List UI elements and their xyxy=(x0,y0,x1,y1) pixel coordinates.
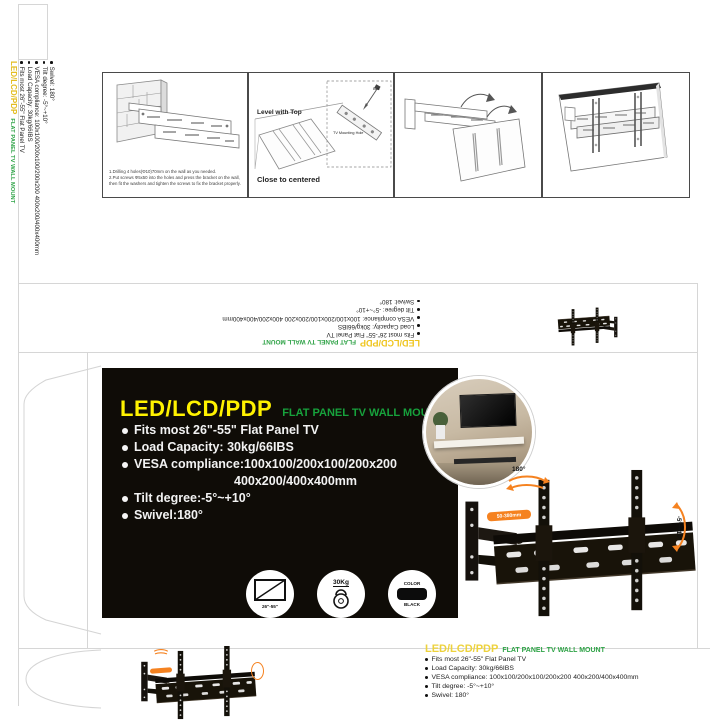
spec-text: Tilt degree: -5°~+10° xyxy=(432,682,495,691)
step2-label-level: Level with Top xyxy=(257,109,302,116)
instruction-step2: Level with Top Close to centered TV Moun… xyxy=(248,72,394,198)
spec-text: VESA compliance: 100x100/200x100/200x200… xyxy=(33,67,40,256)
front-spec-vesa: VESA compliance:100x100/200x100/200x200 xyxy=(122,456,397,473)
inverted-brand: LED/LCD/PDPFLAT PANEL TV WALL MOUNT xyxy=(130,338,420,348)
step2-label-bolt: Bolt xyxy=(373,87,380,91)
bottom-spec-vesa: VESA compliance: 100x100/200x100/200x200… xyxy=(425,673,639,682)
spec-text: Fits most 26"-55" Flat Panel TV xyxy=(134,422,319,439)
bullet-dot xyxy=(122,428,128,434)
step1-caption-2: 2.Put screws Φ5x50 into the holes and pr… xyxy=(109,175,240,181)
brand-name: LED/LCD/PDP xyxy=(360,338,420,348)
spec-text: Fits most 26"-55" Flat Panel TV xyxy=(432,655,527,664)
spec-text: Fits most 26"-55" Flat Panel TV xyxy=(327,330,415,338)
side-spec-fits: Fits most 26"-55" Flat Panel TV xyxy=(18,61,25,285)
bullet-dot xyxy=(417,333,420,336)
bottom-spec-swivel: Swivel: 180° xyxy=(425,691,639,700)
brand-name: LED/LCD/PDP xyxy=(120,396,272,422)
inverted-spec-vesa: VESA compliance: 100x100/200x100/200x200… xyxy=(130,313,420,321)
side-brand: LED/LCD/PDPFLAT PANEL TV WALL MOUNT xyxy=(9,61,18,285)
screen-range-label: 26"-55" xyxy=(262,604,278,610)
front-spec-tilt: Tilt degree:-5°~+10° xyxy=(122,490,397,507)
bottom-tilt-mark xyxy=(251,662,264,680)
bullet-dot xyxy=(122,445,128,451)
spec-text: Load Capacity: 30kg/66IBS xyxy=(432,664,514,673)
spec-text: Fits most 26"-55" Flat Panel TV xyxy=(18,67,25,153)
front-spec-swivel: Swivel:180° xyxy=(122,507,397,524)
weight-label: 30Kg xyxy=(333,579,349,587)
bullet-dot xyxy=(425,685,428,688)
brand-tagline: FLAT PANEL TV WALL MOUNT xyxy=(262,338,356,345)
instruction-step4 xyxy=(542,72,690,198)
bullet-dot xyxy=(417,324,420,327)
spec-text: VESA compliance: 100x100/200x100/200x200… xyxy=(432,673,639,682)
inverted-spec-load: Load Capacity: 30kg/66IBS xyxy=(130,322,420,330)
badge-screen-size: 26"-55" xyxy=(246,570,294,618)
photo-tv xyxy=(459,393,516,428)
bullet-dot xyxy=(425,667,428,670)
brand-tagline: FLAT PANEL TV WALL MOUNT xyxy=(502,647,605,654)
step4-diagram xyxy=(543,73,689,197)
mount-artwork-large xyxy=(455,468,703,626)
spec-text: Swivel: 180° xyxy=(48,67,55,101)
bottom-swivel-arrow-icon xyxy=(152,648,170,656)
bullet-dot xyxy=(417,300,420,303)
bullet-dot xyxy=(50,61,53,64)
spec-text: Tilt degree: -5°~+10° xyxy=(40,67,47,124)
front-spec-load: Load Capacity: 30kg/66IBS xyxy=(122,439,397,456)
color-swatch-black xyxy=(397,588,427,600)
inverted-mount-image xyxy=(556,294,620,346)
bottom-panel-text: LED/LCD/PDP FLAT PANEL TV WALL MOUNT Fit… xyxy=(425,643,639,700)
package-artwork: { "side_strip": { "brand": "LED/LCD/PDP"… xyxy=(0,0,710,710)
spec-text: VESA compliance:100x100/200x100/200x200 xyxy=(134,456,397,473)
inverted-spec-swivel: Swivel: 180° xyxy=(130,297,420,305)
mount-artwork-small-inverted xyxy=(556,305,620,346)
bullet-dot xyxy=(425,694,428,697)
color-value-label: BLACK xyxy=(404,602,420,608)
bullet-dot xyxy=(417,308,420,311)
bullet-dot xyxy=(425,658,428,661)
step1-caption-3: then fit the washers and tighten the scr… xyxy=(109,181,241,187)
badge-color: COLOR BLACK xyxy=(388,570,436,618)
bullet-dot xyxy=(417,316,420,319)
step1-caption-1: 1.Drilling 4 holes(Φ10)70mm on the wall … xyxy=(109,169,216,175)
front-spec-fits: Fits most 26"-55" Flat Panel TV xyxy=(122,422,397,439)
inverted-spec-fits: Fits most 26"-55" Flat Panel TV xyxy=(130,330,420,338)
bottom-spec-fits: Fits most 26"-55" Flat Panel TV xyxy=(425,655,639,664)
swivel-annotation: 180° xyxy=(512,466,525,473)
tilt-arrow-icon xyxy=(668,500,694,554)
spec-text: VESA compliance: 100x100/200x100/200x200… xyxy=(222,313,414,321)
bullet-dot xyxy=(425,676,428,679)
bullet-dot xyxy=(28,61,31,64)
side-spec-vesa: VESA compliance: 100x100/200x100/200x200… xyxy=(33,61,40,285)
swivel-arrow-icon xyxy=(503,474,551,492)
front-panel: LED/LCD/PDP FLAT PANEL TV WALL MOUNT Fit… xyxy=(102,368,458,618)
bullet-dot xyxy=(122,513,128,519)
color-label: COLOR xyxy=(404,581,421,587)
instruction-step3 xyxy=(394,72,542,198)
spec-text: Swivel: 180° xyxy=(379,297,414,305)
side-spec-swivel: Swivel: 180° xyxy=(48,61,55,285)
extension-label: 50-380mm xyxy=(497,512,522,520)
instruction-step1: 1.Drilling 4 holes(Φ10)70mm on the wall … xyxy=(102,72,248,198)
tv-screen-icon xyxy=(252,578,288,604)
badge-weight: 30Kg xyxy=(317,570,365,618)
photo-shelf xyxy=(434,437,524,449)
spec-text: Tilt degree: -5°~+10° xyxy=(356,305,414,313)
spec-text: Swivel:180° xyxy=(134,507,203,524)
weight-icon xyxy=(328,587,354,609)
bullet-dot xyxy=(43,61,46,64)
spec-text: 400x200/400x400mm xyxy=(234,473,357,490)
mount-artwork-bottom xyxy=(136,645,260,724)
inverted-spec-tilt: Tilt degree: -5°~+10° xyxy=(130,305,420,313)
inverted-strip: LED/LCD/PDPFLAT PANEL TV WALL MOUNT Fits… xyxy=(130,288,420,348)
brand-name: LED/LCD/PDP xyxy=(425,643,498,655)
bullet-dot xyxy=(35,61,38,64)
brand-name: LED/LCD/PDP xyxy=(9,61,18,114)
side-spec-load: Load Capacity: 30kg/66IBS xyxy=(25,61,32,285)
bullet-dot xyxy=(122,496,128,502)
front-brand: LED/LCD/PDP FLAT PANEL TV WALL MOUNT xyxy=(120,396,443,422)
step2-label-hole: TV Mounting Hole xyxy=(333,131,363,135)
front-specs: Fits most 26"-55" Flat Panel TV Load Cap… xyxy=(122,422,397,524)
brand-tagline: FLAT PANEL TV WALL MOUNT xyxy=(9,118,15,203)
spec-text: Load Capacity: 30kg/66IBS xyxy=(134,439,294,456)
bullet-dot xyxy=(20,61,23,64)
spec-text: Load Capacity: 30kg/66IBS xyxy=(25,67,32,142)
front-spec-vesa-cont: 400x200/400x400mm xyxy=(122,473,397,490)
step3-diagram xyxy=(395,73,541,197)
side-strip: Swivel: 180° Tilt degree: -5°~+10° VESA … xyxy=(11,61,55,285)
bottom-spec-tilt: Tilt degree: -5°~+10° xyxy=(425,682,639,691)
spec-text: Load Capacity: 30kg/66IBS xyxy=(338,322,414,330)
side-spec-tilt: Tilt degree: -5°~+10° xyxy=(40,61,47,285)
spec-text: Swivel: 180° xyxy=(432,691,469,700)
spec-text: Tilt degree:-5°~+10° xyxy=(134,490,251,507)
photo-vase xyxy=(436,425,445,439)
bottom-brand: LED/LCD/PDP FLAT PANEL TV WALL MOUNT xyxy=(425,643,639,655)
bottom-spec-load: Load Capacity: 30kg/66IBS xyxy=(425,664,639,673)
bullet-dot xyxy=(122,462,128,468)
brand-tagline: FLAT PANEL TV WALL MOUNT xyxy=(282,407,443,419)
step2-label-center: Close to centered xyxy=(257,175,320,184)
